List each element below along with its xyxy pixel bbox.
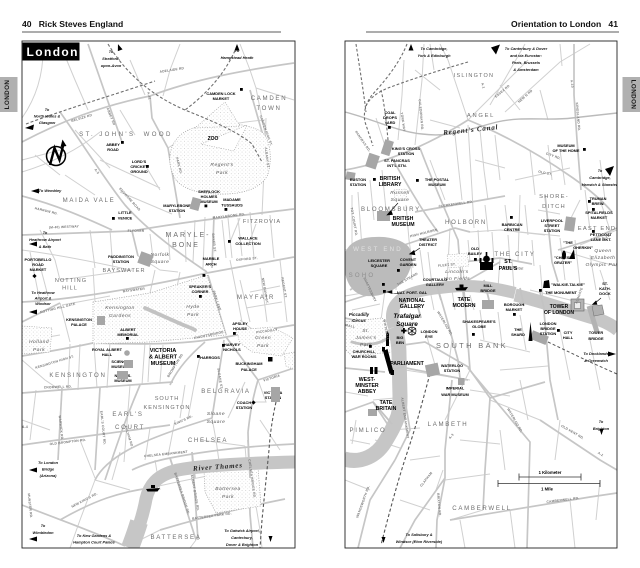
svg-text:GLOBE: GLOBE [472, 324, 486, 329]
svg-text:CAMDEN: CAMDEN [251, 95, 288, 102]
svg-text:ST. JOHN'S WOOD: ST. JOHN'S WOOD [79, 131, 173, 138]
svg-text:EYE: EYE [425, 334, 433, 339]
svg-text:SHARD: SHARD [511, 332, 525, 337]
svg-text:To: To [598, 168, 603, 173]
svg-text:HOUSE: HOUSE [233, 326, 247, 331]
svg-text:Hampton Court Palace: Hampton Court Palace [73, 540, 116, 545]
svg-text:CHELSEA: CHELSEA [188, 437, 228, 444]
svg-text:BRIDGE: BRIDGE [588, 336, 604, 341]
svg-text:BREW.: BREW. [592, 201, 605, 206]
svg-text:BUCKINGHAM: BUCKINGHAM [235, 361, 262, 366]
svg-text:St.: St. [362, 328, 369, 334]
svg-text:upon-Avon: upon-Avon [101, 63, 122, 68]
svg-text:STATION: STATION [236, 405, 253, 410]
svg-text:THE MONUMENT: THE MONUMENT [545, 290, 577, 295]
svg-text:COLLECTION: COLLECTION [235, 241, 260, 246]
svg-text:MAYFAIR: MAYFAIR [237, 294, 275, 301]
svg-text:Airport &: Airport & [34, 296, 52, 301]
svg-text:Paris, Brussels: Paris, Brussels [512, 60, 541, 65]
svg-text:YARD: YARD [385, 120, 396, 125]
svg-text:GALLERY: GALLERY [426, 282, 445, 287]
svg-text:VENICE: VENICE [118, 216, 133, 221]
svg-text:SQUARE: SQUARE [371, 263, 388, 268]
svg-text:SOUTH: SOUTH [155, 396, 180, 402]
svg-text:To: To [109, 49, 114, 54]
svg-text:Park: Park [33, 347, 45, 353]
svg-text:IMPERIAL: IMPERIAL [446, 386, 465, 391]
svg-text:GARDEN: GARDEN [400, 262, 417, 267]
svg-text:STATION: STATION [169, 208, 186, 213]
svg-text:EARL'S: EARL'S [112, 411, 143, 418]
svg-text:ARCH: ARCH [205, 262, 216, 267]
svg-text:& ALBERT: & ALBERT [149, 355, 178, 361]
svg-text:Inn Fields: Inn Fields [444, 276, 470, 282]
svg-text:Green: Green [255, 335, 271, 341]
svg-text:Kensington: Kensington [105, 305, 134, 311]
svg-text:LANE MKT.: LANE MKT. [591, 237, 612, 242]
svg-text:FLYOVER: FLYOVER [128, 229, 145, 233]
svg-text:To Docklands: To Docklands [583, 351, 609, 356]
svg-text:MARKET: MARKET [213, 96, 230, 101]
svg-text:WEST END: WEST END [353, 246, 403, 253]
svg-text:DITCH: DITCH [542, 204, 566, 210]
svg-text:Square: Square [391, 197, 410, 203]
svg-text:Battersea: Battersea [215, 486, 240, 492]
svg-text:NAT. PORT. GAL: NAT. PORT. GAL [397, 290, 428, 295]
svg-text:SOHO: SOHO [349, 272, 376, 279]
svg-text:Sloane: Sloane [207, 411, 225, 417]
svg-text:Olympic Park: Olympic Park [585, 262, 620, 268]
svg-text:To: To [43, 230, 48, 235]
svg-text:Wimbledon: Wimbledon [33, 530, 55, 535]
svg-text:To Wembley: To Wembley [39, 188, 63, 193]
svg-text:To Cambridge,: To Cambridge, [420, 46, 447, 51]
svg-text:KENSINGTON: KENSINGTON [144, 405, 191, 411]
svg-text:MUSEUM: MUSEUM [151, 361, 176, 367]
svg-text:James's: James's [354, 335, 376, 341]
svg-text:Regent's: Regent's [210, 162, 233, 168]
svg-text:BAILEY: BAILEY [468, 251, 483, 256]
svg-text:OF LONDON: OF LONDON [544, 310, 574, 316]
svg-text:To: To [41, 523, 46, 528]
svg-text:STATION: STATION [444, 368, 461, 373]
svg-text:CAMBERWELL: CAMBERWELL [452, 505, 512, 512]
svg-text:Heathrow Airport: Heathrow Airport [29, 237, 61, 242]
svg-text:COURT: COURT [115, 424, 145, 431]
svg-text:PAUL'S: PAUL'S [499, 266, 518, 272]
svg-text:Park: Park [257, 343, 269, 349]
svg-text:HILL: HILL [62, 286, 78, 292]
svg-text:Gardens: Gardens [109, 313, 131, 319]
svg-text:THE CITY: THE CITY [494, 251, 535, 258]
svg-text:To Kew Gardens &: To Kew Gardens & [77, 533, 112, 538]
svg-text:To: To [599, 419, 604, 424]
svg-text:Park: Park [187, 312, 199, 318]
svg-text:HOLBORN: HOLBORN [445, 219, 487, 226]
svg-text:To London: To London [38, 460, 59, 465]
svg-text:MARKET: MARKET [506, 307, 523, 312]
svg-text:Bridge: Bridge [42, 467, 55, 472]
svg-text:DOCK: DOCK [599, 291, 611, 296]
svg-text:Harwich & Stansted: Harwich & Stansted [582, 182, 619, 187]
svg-text:London: London [27, 45, 79, 59]
svg-text:GRATER": GRATER" [554, 260, 572, 265]
svg-text:PARLIAMENT: PARLIAMENT [390, 361, 424, 367]
svg-text:Circus: Circus [352, 318, 366, 323]
svg-text:Dover & Brighton: Dover & Brighton [226, 542, 259, 547]
svg-text:Square: Square [396, 321, 418, 328]
svg-text:Square: Square [207, 419, 226, 425]
svg-text:To: To [45, 107, 50, 112]
svg-text:Russell: Russell [390, 190, 410, 196]
svg-text:KENSINGTON: KENSINGTON [49, 372, 106, 379]
svg-text:MODERN: MODERN [452, 303, 475, 309]
svg-text:BRITAIN: BRITAIN [376, 406, 397, 412]
svg-text:1 Mile: 1 Mile [541, 487, 553, 492]
svg-text:NOTTING: NOTTING [55, 278, 87, 284]
svg-text:BAYSWATER: BAYSWATER [102, 268, 145, 274]
svg-text:PALACE: PALACE [71, 322, 87, 327]
svg-text:1 Kilometer: 1 Kilometer [539, 470, 562, 475]
svg-text:NICHOLS: NICHOLS [223, 347, 241, 352]
svg-text:STATION: STATION [350, 182, 367, 187]
svg-text:ABBEY: ABBEY [358, 389, 377, 395]
svg-text:Canterbury,: Canterbury, [231, 535, 253, 540]
svg-text:MARYLE-: MARYLE- [166, 232, 211, 239]
svg-text:& Greenwich: & Greenwich [584, 358, 608, 363]
svg-text:"WALKIE-TALKIE": "WALKIE-TALKIE" [551, 282, 585, 287]
svg-text:"THE: "THE [563, 240, 573, 245]
svg-text:BATTERSEA: BATTERSEA [150, 534, 201, 541]
svg-text:& Bath: & Bath [39, 244, 52, 249]
svg-text:VICTORIA: VICTORIA [150, 348, 177, 354]
svg-text:SOUTH BANK: SOUTH BANK [436, 341, 508, 350]
svg-text:To Gatwick Airport,: To Gatwick Airport, [224, 528, 260, 533]
svg-text:To Canterbury & Dover: To Canterbury & Dover [505, 46, 548, 51]
svg-text:Lincoln's: Lincoln's [445, 269, 468, 275]
svg-text:HALL: HALL [102, 352, 113, 357]
svg-text:OF THE HOME: OF THE HOME [552, 148, 579, 153]
svg-text:ANGEL: ANGEL [467, 113, 495, 119]
svg-text:MUSEUM: MUSEUM [428, 182, 445, 187]
svg-text:Piccadilly: Piccadilly [349, 312, 370, 317]
svg-text:LIBRARY: LIBRARY [379, 182, 402, 188]
svg-text:HALL: HALL [563, 335, 574, 340]
svg-text:MARBLE: MARBLE [203, 256, 220, 261]
svg-text:Stratford-: Stratford- [102, 56, 120, 61]
svg-text:To Heathrow: To Heathrow [31, 290, 55, 295]
svg-text:CORNER: CORNER [192, 289, 209, 294]
svg-text:Holland: Holland [29, 339, 49, 345]
svg-text:MARKET: MARKET [30, 267, 47, 272]
svg-text:PIMLICO: PIMLICO [350, 427, 387, 434]
svg-text:Glasgow: Glasgow [39, 120, 56, 125]
svg-text:(Arizona): (Arizona) [40, 473, 58, 478]
svg-text:WALLACE: WALLACE [238, 236, 258, 241]
svg-text:BONE: BONE [172, 242, 200, 249]
svg-text:Trafalgar: Trafalgar [393, 313, 421, 320]
svg-text:Hyde: Hyde [186, 304, 199, 310]
svg-text:TUSSAUDS: TUSSAUDS [221, 203, 243, 208]
svg-text:York & Edinburgh: York & Edinburgh [418, 53, 452, 58]
svg-text:ZOO: ZOO [208, 136, 219, 142]
svg-text:Norfolk: Norfolk [151, 252, 170, 258]
svg-text:PALACE: PALACE [241, 367, 257, 372]
svg-text:FITZROVIA: FITZROVIA [243, 219, 281, 225]
svg-text:BRIDGE: BRIDGE [480, 288, 496, 293]
svg-text:WAR MUSEUM: WAR MUSEUM [441, 392, 468, 397]
svg-text:ROAD: ROAD [107, 147, 119, 152]
svg-text:MUSEUM: MUSEUM [200, 199, 217, 204]
svg-text:ISLINGTON: ISLINGTON [454, 73, 494, 79]
svg-text:MUSEUM: MUSEUM [391, 222, 414, 228]
svg-text:GALLERY: GALLERY [400, 304, 425, 310]
svg-text:MADAME: MADAME [223, 197, 241, 202]
svg-text:North Wales &: North Wales & [34, 114, 61, 119]
svg-text:MEMORIAL: MEMORIAL [117, 332, 139, 337]
svg-text:BELGRAVIA: BELGRAVIA [201, 388, 250, 395]
svg-text:A-4: A-4 [22, 425, 28, 429]
svg-text:HARRODS: HARRODS [200, 355, 220, 360]
svg-text:Queen: Queen [594, 248, 611, 254]
svg-text:DISTRICT: DISTRICT [419, 242, 438, 247]
svg-text:LAMBETH: LAMBETH [428, 421, 469, 428]
svg-text:SHORE-: SHORE- [539, 194, 569, 200]
svg-text:40 Rick Steves England: 40 Rick Steves England [22, 19, 123, 29]
svg-text:STATION: STATION [540, 331, 557, 336]
svg-text:Windsor: Windsor [35, 301, 51, 306]
svg-text:& Amsterdam: & Amsterdam [513, 67, 539, 72]
svg-text:GROUND: GROUND [130, 169, 147, 174]
svg-text:LONDON: LONDON [630, 80, 637, 110]
svg-text:Orientation to London 41: Orientation to London 41 [511, 19, 618, 29]
svg-text:MARKET: MARKET [591, 215, 608, 220]
svg-text:TOWN: TOWN [256, 105, 281, 112]
svg-text:Cambridge,: Cambridge, [589, 175, 610, 180]
svg-text:STATION: STATION [398, 151, 415, 156]
svg-text:Park: Park [216, 170, 228, 176]
svg-text:BEN: BEN [396, 340, 404, 345]
svg-text:TOWER: TOWER [589, 330, 604, 335]
svg-text:and via Eurostar:: and via Eurostar: [510, 53, 542, 58]
svg-text:LONDON: LONDON [4, 80, 11, 110]
svg-text:ST.: ST. [504, 259, 512, 265]
svg-text:Park: Park [222, 494, 234, 500]
svg-text:LITTLE: LITTLE [118, 210, 132, 215]
svg-text:CENTRE: CENTRE [504, 227, 520, 232]
svg-text:To Salisbury &: To Salisbury & [405, 532, 432, 537]
svg-text:INT'L STN.: INT'L STN. [387, 163, 406, 168]
svg-text:Square: Square [151, 259, 170, 265]
svg-text:GHERKIN": GHERKIN" [573, 245, 593, 250]
svg-text:STATION: STATION [544, 228, 561, 233]
svg-text:MAIDA VALE: MAIDA VALE [63, 197, 116, 204]
svg-text:Hampstead Heath: Hampstead Heath [221, 55, 254, 60]
svg-text:Windsor (Eton Riverside): Windsor (Eton Riverside) [396, 539, 443, 544]
svg-text:WAR ROOMS: WAR ROOMS [352, 354, 377, 359]
svg-text:STATION: STATION [113, 259, 130, 264]
svg-text:Elizabeth: Elizabeth [591, 255, 616, 261]
